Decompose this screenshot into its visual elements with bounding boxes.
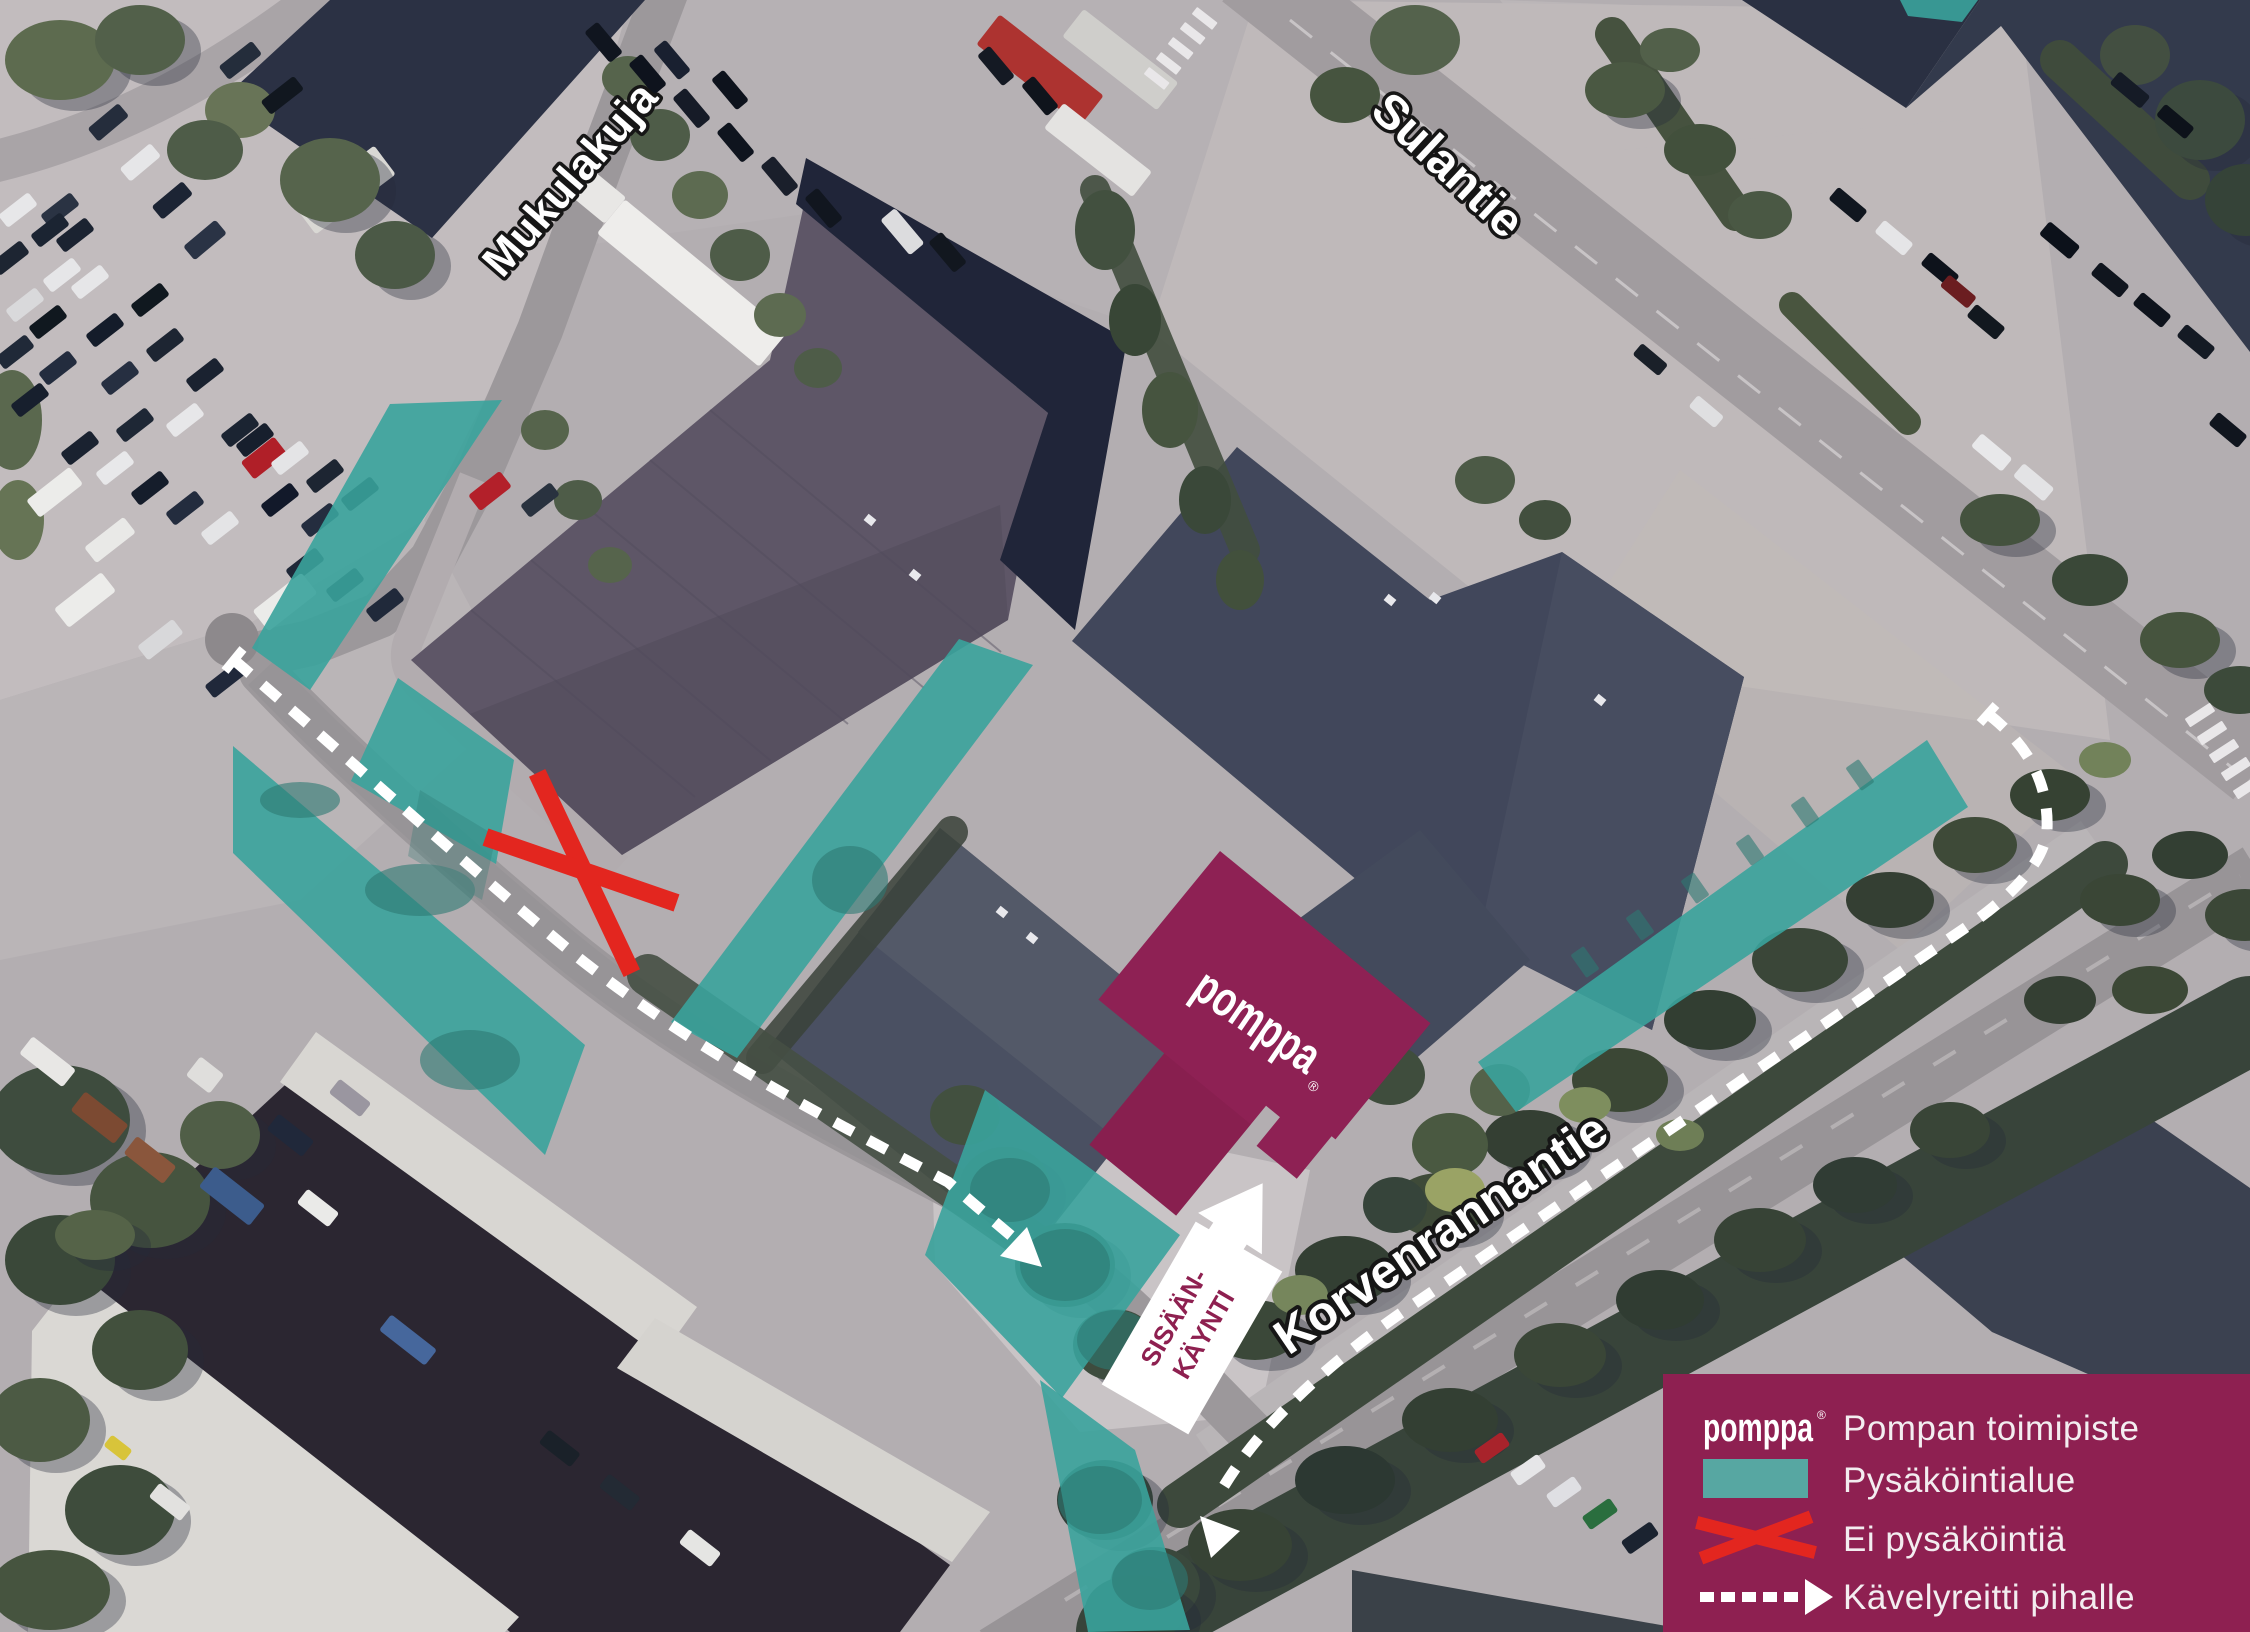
- svg-text:®: ®: [1817, 1408, 1826, 1422]
- svg-text:pomppa: pomppa: [1703, 1406, 1814, 1450]
- svg-text:Pompan toimipiste: Pompan toimipiste: [1843, 1409, 2139, 1448]
- svg-text:Pysäköintialue: Pysäköintialue: [1843, 1461, 2076, 1500]
- svg-text:Ei pysäköintiä: Ei pysäköintiä: [1843, 1520, 2066, 1559]
- svg-text:Kävelyreitti pihalle: Kävelyreitti pihalle: [1843, 1578, 2135, 1617]
